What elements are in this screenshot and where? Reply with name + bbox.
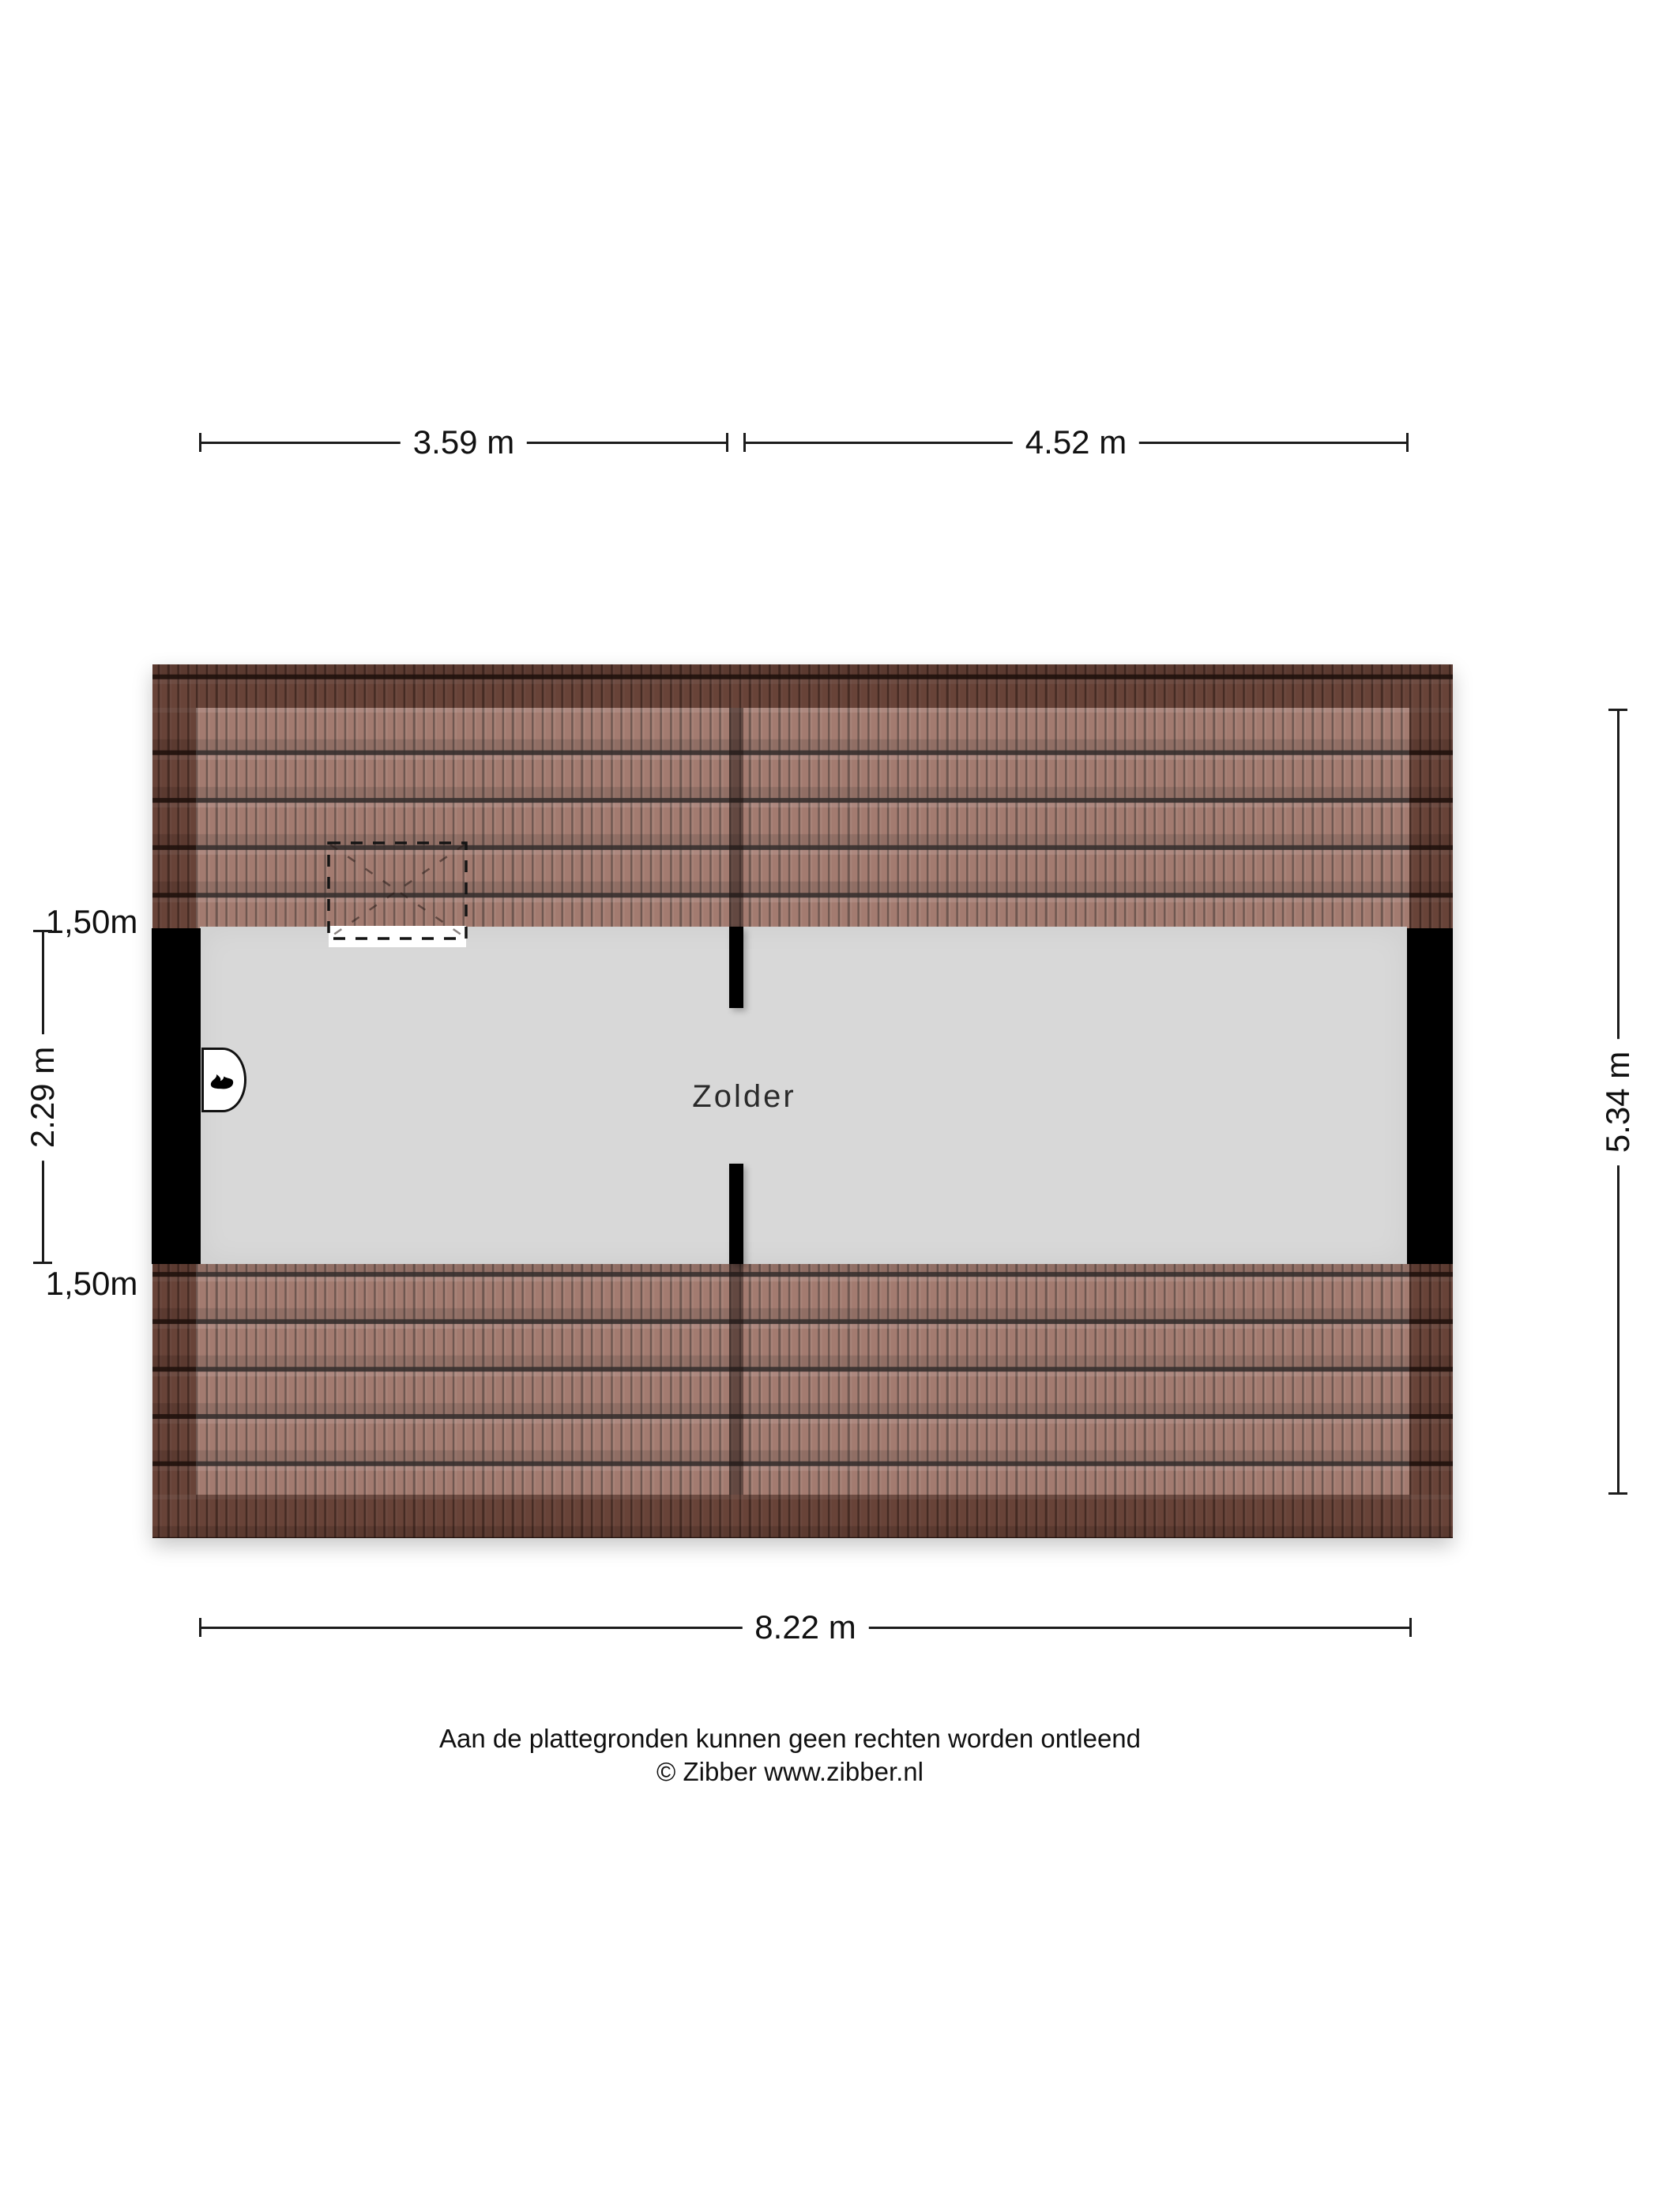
skylight-symbol xyxy=(327,841,468,947)
wall-stub-bottom xyxy=(729,1164,743,1264)
footer: Aan de plattegronden kunnen geen rechten… xyxy=(0,1722,1580,1789)
dimension-label: 2.29 m xyxy=(24,1033,61,1160)
dimension-label: 3.59 m xyxy=(401,424,527,461)
dimension-label: 4.52 m xyxy=(1013,424,1139,461)
dimension-label: 8.22 m xyxy=(742,1609,868,1646)
dimension-label: 5.34 m xyxy=(1600,1038,1636,1164)
dimension-tick xyxy=(1608,1492,1627,1495)
dimension-top-right: 4.52 m xyxy=(743,433,1409,452)
flame-icon xyxy=(209,1068,235,1092)
dimension-tick xyxy=(33,1262,52,1264)
mid-wall-under-roof-top xyxy=(729,708,743,927)
dimension-top-left: 3.59 m xyxy=(199,433,728,452)
mid-wall-under-roof-bottom xyxy=(729,1264,743,1495)
room-label: Zolder xyxy=(626,1081,863,1112)
dimension-left-depth: 2.29 m xyxy=(33,930,52,1264)
wall-left xyxy=(152,928,201,1264)
dimension-right-total-depth: 5.34 m xyxy=(1608,709,1627,1495)
dimension-tick xyxy=(726,433,728,452)
dimension-tick xyxy=(1406,433,1409,452)
dimension-bottom-total-width: 8.22 m xyxy=(199,1618,1412,1637)
wall-stub-top xyxy=(729,927,743,1008)
roof-band-bottom-label: 1,50m xyxy=(32,1267,152,1300)
footer-copyright: © Zibber www.zibber.nl xyxy=(0,1755,1580,1789)
floor-plan-page: 3.59 m 4.52 m Zolder 1,50m 1,50m xyxy=(0,0,1659,2212)
wall-right xyxy=(1407,928,1453,1264)
dimension-tick xyxy=(1409,1618,1412,1637)
skylight-dashed-icon xyxy=(327,841,468,947)
footer-disclaimer: Aan de plattegronden kunnen geen rechten… xyxy=(0,1722,1580,1755)
